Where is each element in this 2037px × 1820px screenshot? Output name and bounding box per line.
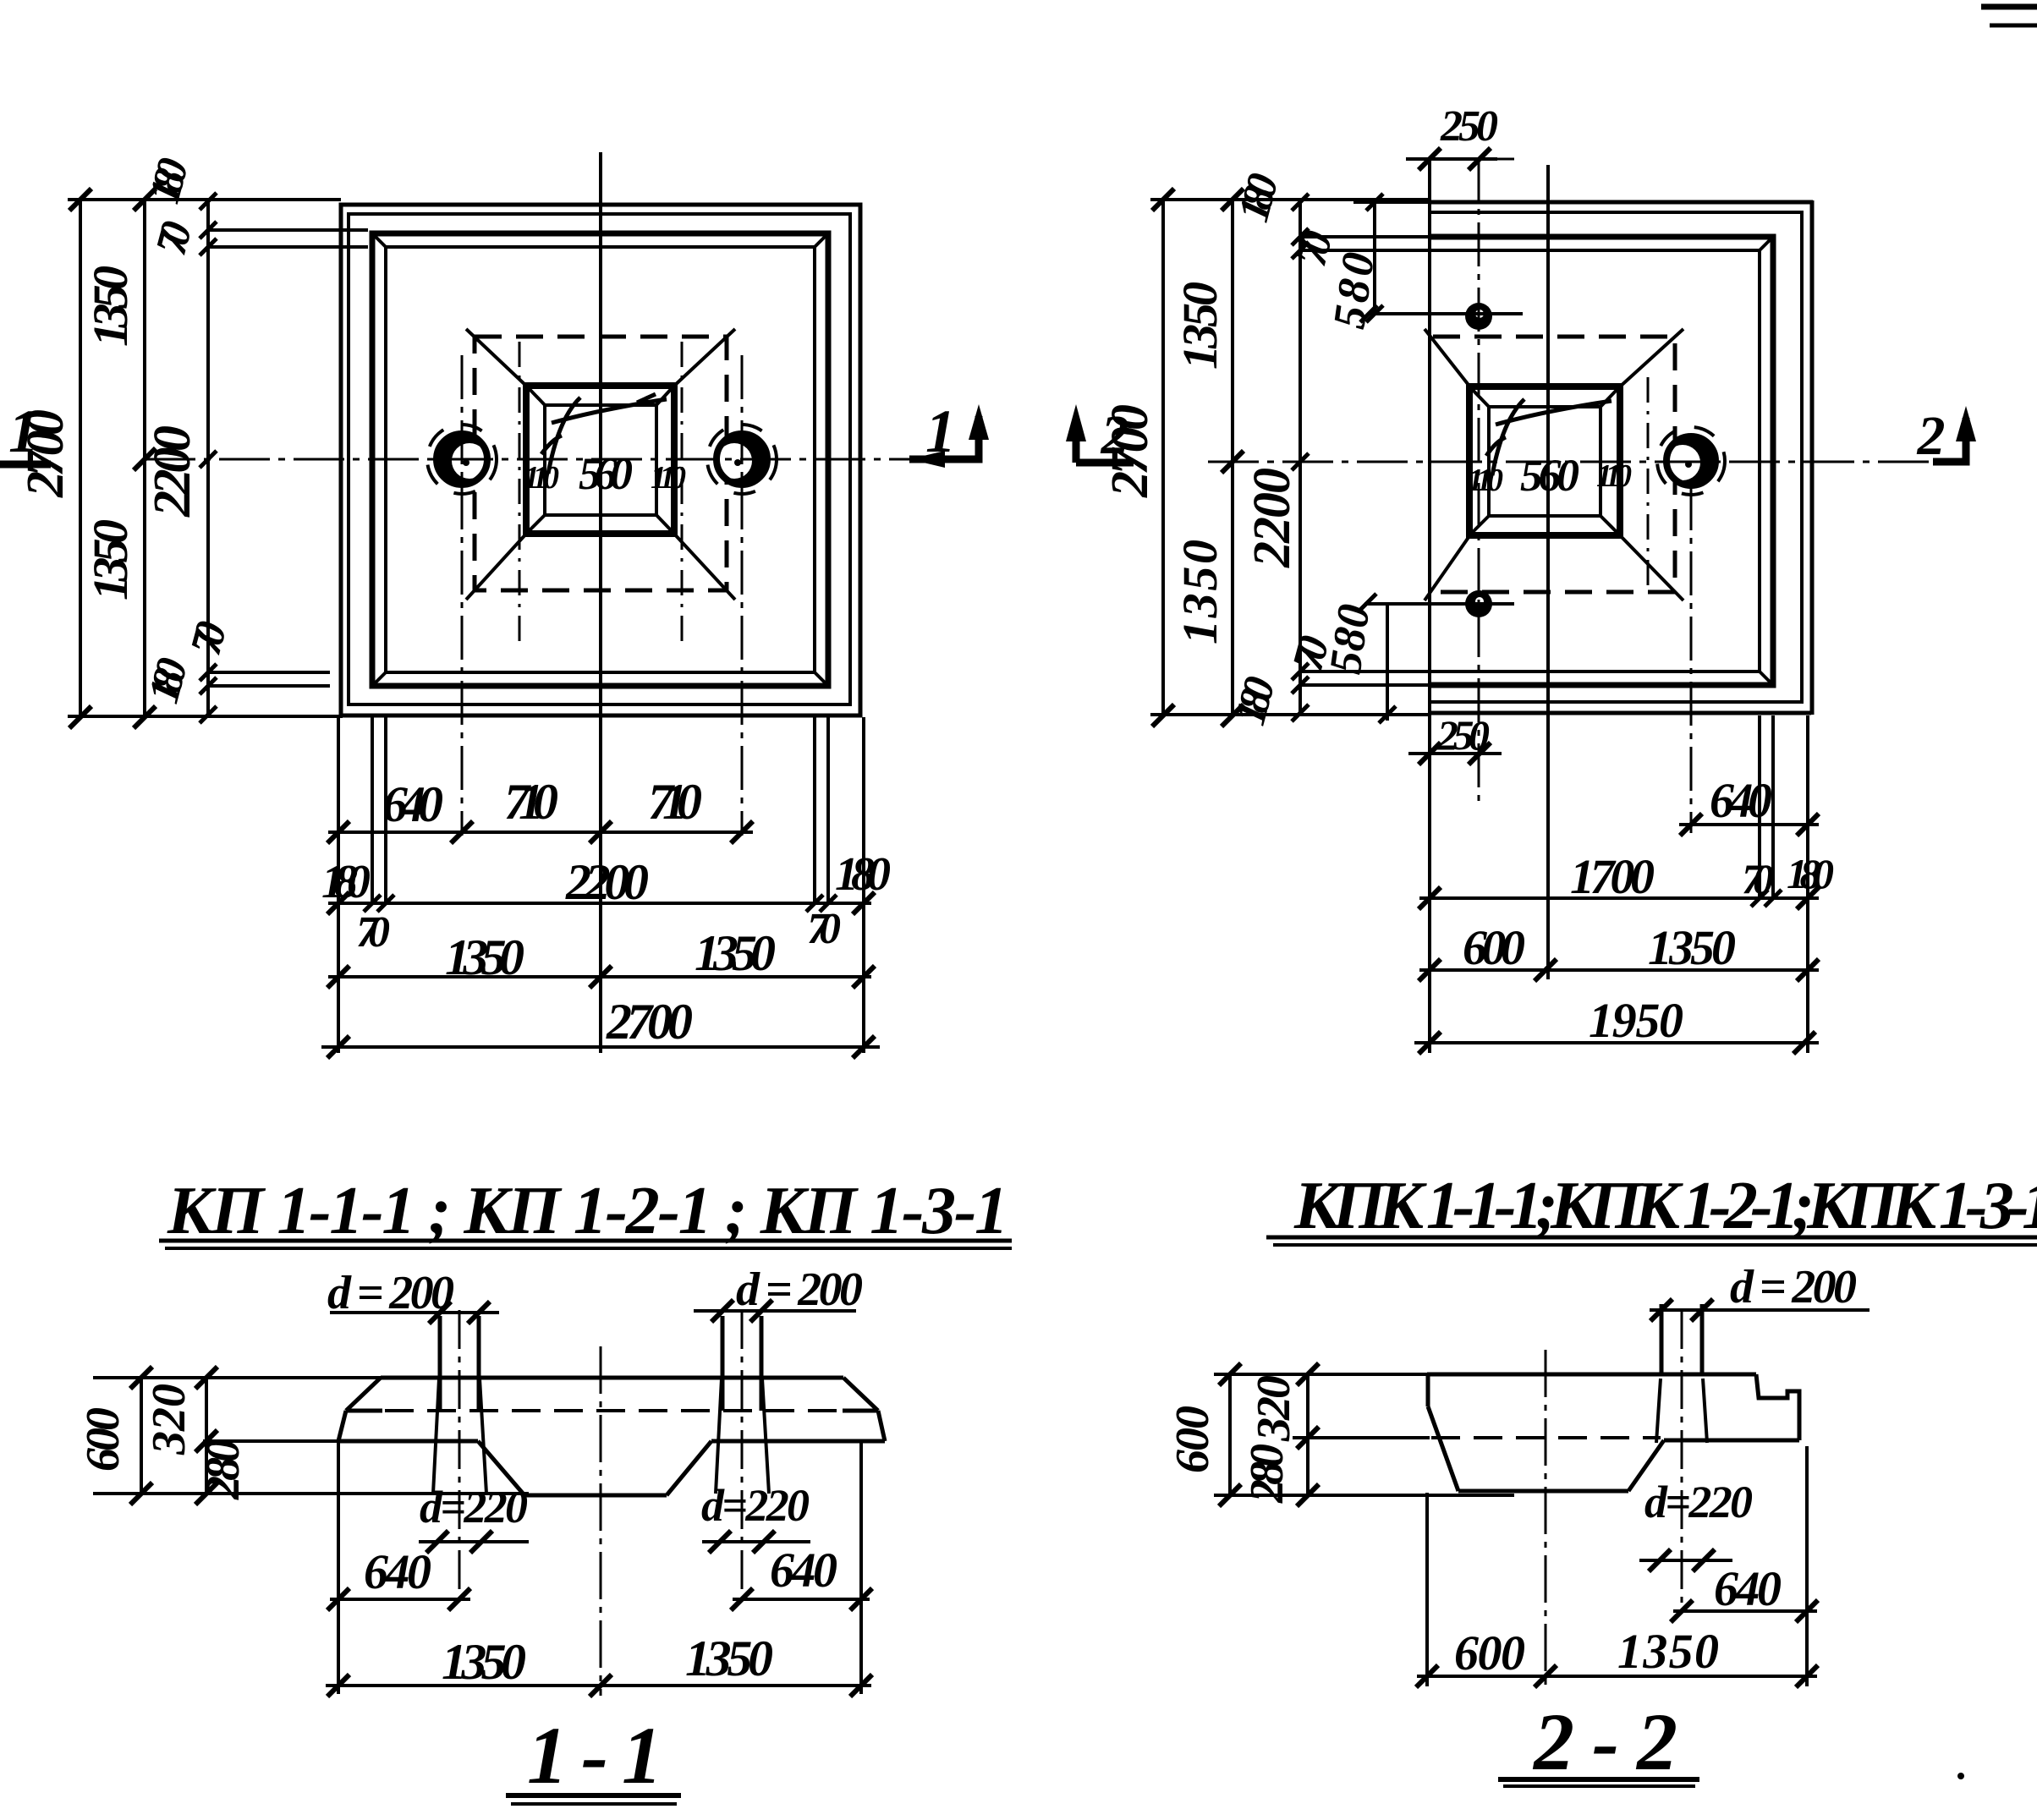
svg-text:2700: 2700 <box>1101 404 1159 498</box>
svg-text:d=220: d=220 <box>1644 1477 1753 1527</box>
svg-text:320: 320 <box>143 1384 195 1455</box>
svg-text:600: 600 <box>77 1407 129 1472</box>
svg-text:70: 70 <box>1742 855 1774 902</box>
svg-text:640: 640 <box>1714 1561 1782 1616</box>
svg-text:d=220: d=220 <box>420 1482 528 1532</box>
svg-text:250: 250 <box>1440 102 1498 151</box>
svg-text:2700: 2700 <box>17 409 74 498</box>
svg-text:1350: 1350 <box>685 1631 773 1686</box>
svg-text:640: 640 <box>364 1544 431 1599</box>
svg-text:2200: 2200 <box>1244 468 1301 568</box>
svg-text:710: 710 <box>648 774 702 830</box>
svg-text:2200: 2200 <box>144 425 201 518</box>
svg-text:320: 320 <box>1248 1375 1300 1442</box>
svg-text:600: 600 <box>1463 920 1525 975</box>
svg-text:1-1: 1-1 <box>527 1710 662 1801</box>
svg-text:1950: 1950 <box>1589 993 1683 1048</box>
svg-text:d=220: d=220 <box>701 1480 810 1531</box>
svg-text:640: 640 <box>770 1543 837 1598</box>
svg-text:250: 250 <box>1436 711 1490 759</box>
svg-text:1350: 1350 <box>445 929 524 985</box>
svg-text:180: 180 <box>1787 850 1834 897</box>
svg-text:70: 70 <box>807 905 841 953</box>
svg-text:1350: 1350 <box>442 1634 526 1690</box>
svg-text:560: 560 <box>579 448 633 499</box>
svg-text:1350: 1350 <box>1648 920 1736 975</box>
svg-text:КПК 1-1-1;КПК 1-2-1;КПК 1-3-1: КПК 1-1-1;КПК 1-2-1;КПК 1-3-1 <box>1293 1169 2037 1243</box>
svg-text:640: 640 <box>1710 773 1772 828</box>
svg-text:1: 1 <box>925 397 956 465</box>
svg-text:580: 580 <box>1320 601 1380 677</box>
svg-text:180: 180 <box>835 848 891 901</box>
svg-text:600: 600 <box>1454 1625 1525 1680</box>
svg-text:2-2: 2-2 <box>1532 1697 1677 1787</box>
svg-text:1350: 1350 <box>1172 282 1227 370</box>
svg-text:2700: 2700 <box>606 994 693 1050</box>
svg-text:1350: 1350 <box>1617 1624 1719 1679</box>
svg-text:110: 110 <box>651 460 686 496</box>
svg-text:110: 110 <box>1596 458 1632 494</box>
svg-text:70: 70 <box>356 908 390 957</box>
svg-text:d = 200: d = 200 <box>1730 1261 1857 1313</box>
svg-text:2: 2 <box>1917 405 1946 467</box>
svg-text:110: 110 <box>524 460 559 496</box>
svg-text:КП 1-1-1 ; КП 1-2-1 ; КП 1-3-1: КП 1-1-1 ; КП 1-2-1 ; КП 1-3-1 <box>167 1174 1008 1248</box>
svg-text:710: 710 <box>504 774 558 830</box>
svg-text:d = 200: d = 200 <box>736 1264 863 1316</box>
svg-text:180: 180 <box>321 856 371 908</box>
svg-text:1350: 1350 <box>83 266 138 347</box>
svg-text:1350: 1350 <box>83 519 138 600</box>
svg-text:110: 110 <box>1468 463 1503 498</box>
svg-text:640: 640 <box>382 776 443 832</box>
svg-text:280: 280 <box>197 1439 250 1500</box>
svg-text:600: 600 <box>1167 1406 1219 1473</box>
svg-text:560: 560 <box>1520 450 1579 501</box>
svg-text:2200: 2200 <box>565 854 649 910</box>
svg-text:1350: 1350 <box>695 925 776 981</box>
svg-text:1700: 1700 <box>1570 849 1655 904</box>
